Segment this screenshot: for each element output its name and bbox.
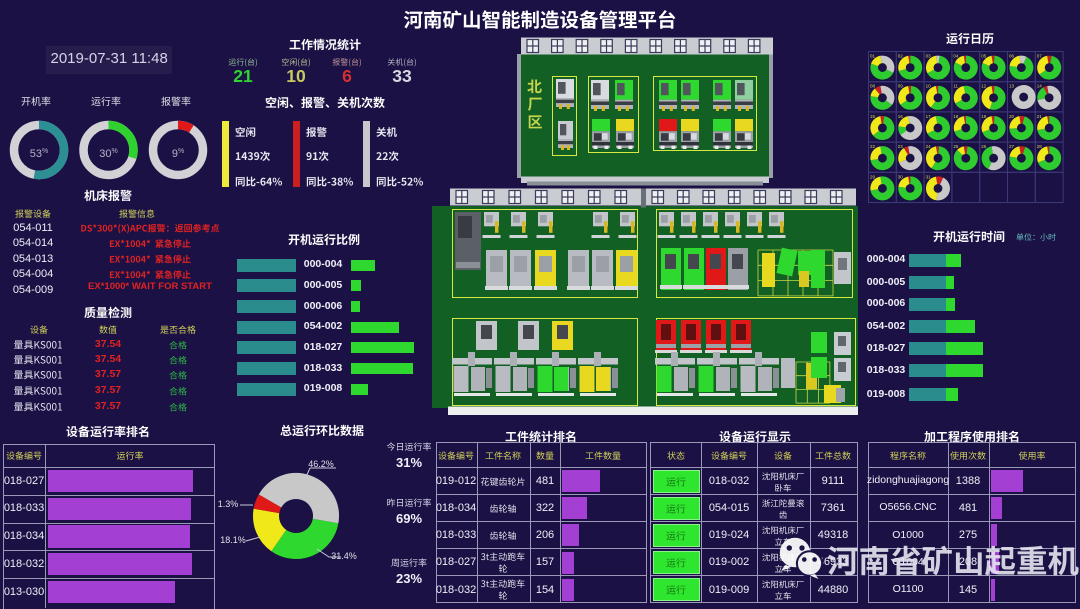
svg-text:28: 28 — [1037, 144, 1043, 149]
svg-text:22: 22 — [870, 144, 876, 149]
svg-text:27: 27 — [1009, 144, 1015, 149]
svg-text:01: 01 — [870, 54, 876, 59]
svg-text:05: 05 — [981, 54, 987, 59]
svg-text:25: 25 — [953, 144, 959, 149]
svg-text:10: 10 — [926, 84, 932, 89]
svg-text:17: 17 — [926, 114, 932, 119]
svg-text:20: 20 — [1009, 114, 1015, 119]
svg-text:21: 21 — [1037, 114, 1043, 119]
svg-text:14: 14 — [1037, 84, 1043, 89]
svg-text:03: 03 — [926, 54, 932, 59]
svg-text:04: 04 — [953, 54, 959, 59]
svg-text:09: 09 — [898, 84, 904, 89]
svg-text:06: 06 — [1009, 54, 1015, 59]
svg-text:16: 16 — [898, 114, 904, 119]
svg-text:31: 31 — [926, 174, 932, 179]
svg-text:23: 23 — [898, 144, 904, 149]
svg-text:08: 08 — [870, 84, 876, 89]
svg-text:19: 19 — [981, 114, 987, 119]
svg-text:12: 12 — [981, 84, 987, 89]
svg-text:13: 13 — [1009, 84, 1015, 89]
svg-text:07: 07 — [1037, 54, 1043, 59]
svg-text:26: 26 — [981, 144, 987, 149]
svg-text:29: 29 — [870, 174, 876, 179]
svg-text:18: 18 — [953, 114, 959, 119]
svg-text:24: 24 — [926, 144, 932, 149]
svg-text:02: 02 — [898, 54, 904, 59]
svg-text:11: 11 — [953, 84, 958, 89]
svg-text:15: 15 — [870, 114, 876, 119]
svg-text:30: 30 — [898, 174, 904, 179]
